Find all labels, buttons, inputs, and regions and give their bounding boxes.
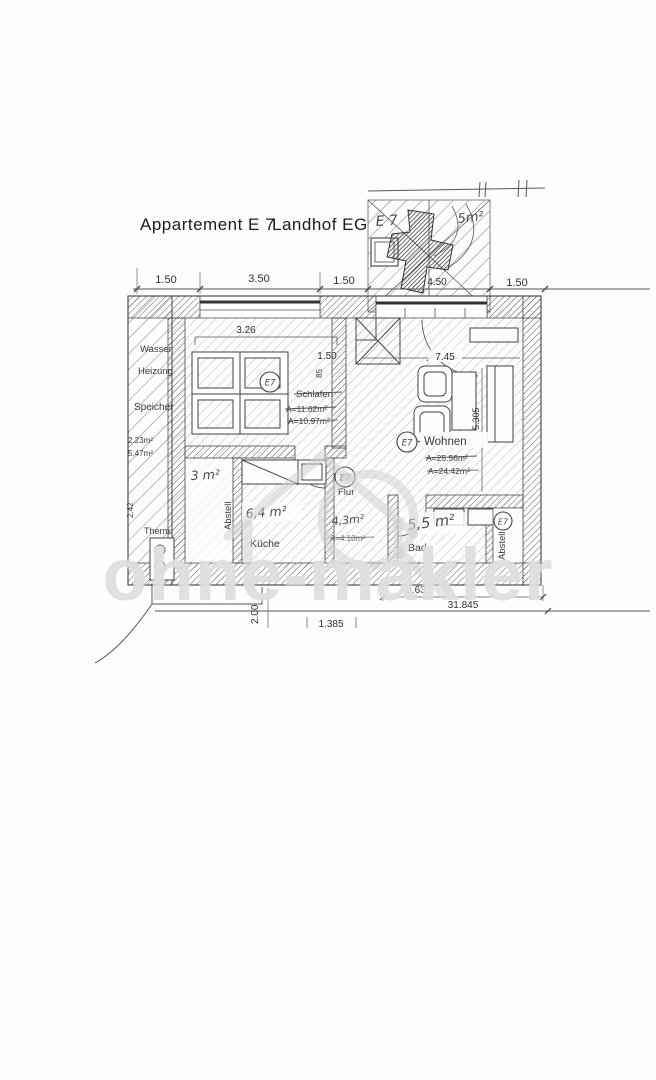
room-label-abstell-left: Abstell [223,501,234,530]
window-schlafen [200,296,320,318]
label-therm: Therm. [144,526,173,536]
dim-top-2: 3.50 [248,273,269,285]
page-title-part1: Appartement E 7 [140,215,275,234]
terrace-area-handwriting: 5m² [457,209,485,227]
top-extension-line [368,180,545,197]
shaft-box [356,318,400,364]
terrace-unit-handwriting: E 7 [375,212,398,230]
dim-left-vertical: 2.42 [126,502,135,518]
dim-top-4: 1.50 [506,277,527,289]
terrace-door [376,296,487,318]
room-label-wohnen: Wohnen [424,436,467,448]
dim-schlafen-width: 3.26 [236,325,256,336]
therme-unit [150,538,174,580]
dim-wohnen-width: 7.45 [435,352,455,363]
dim-top-1: 1.50 [155,274,176,286]
unit-badge-wohnen: E7 [402,439,413,449]
dim-schlafen-door: 1.50 [317,351,337,362]
entry-steps [95,585,262,663]
schlafen-door-mark: 85 [315,369,324,378]
page-title-part2: Landhof EG [272,215,368,234]
dim-top-3: 1.50 [333,275,354,287]
room-label-schlafen: Schlafen [296,389,333,400]
unit-badge-abstell: E7 [498,518,509,527]
label-core-area-large: 5.47m² [128,449,153,458]
bed [192,352,288,434]
abstell-left-area-handwriting: 3 m² [190,466,220,483]
abstell-left-labels: 3 m² Abstell [186,460,234,560]
dim-bottom-1385: 1.385 [318,619,343,630]
terrace-dim-label: 4.50 [427,277,447,288]
dim-bottom-363: 3.63 [406,585,426,596]
label-heizung: Heizung [138,366,173,377]
dim-bottom-total: 31.845 [448,600,479,611]
room-label-kueche: Küche [250,538,280,550]
label-speicher: Speicher [134,402,174,413]
bottom-dimension-chains: 3.63 31.845 2.00 1.385 [155,585,650,630]
floorplan-drawing: Appartement E 7 Landhof EG E 7 5m² 4.50 … [0,0,656,1080]
unit-badge-schlafen: E7 [265,379,276,389]
scanned-floorplan-page: Appartement E 7 Landhof EG E 7 5m² 4.50 … [0,0,656,1080]
flur-area-old: A=4.10m² [330,534,365,543]
room-label-abstell-right: Abstell [497,531,508,560]
label-core-area-small: 2.23m² [128,436,153,445]
dim-wohnen-height: 5.305 [471,407,481,430]
dim-bottom-200: 2.00 [250,604,261,624]
label-wasser: Wasser [140,344,172,355]
